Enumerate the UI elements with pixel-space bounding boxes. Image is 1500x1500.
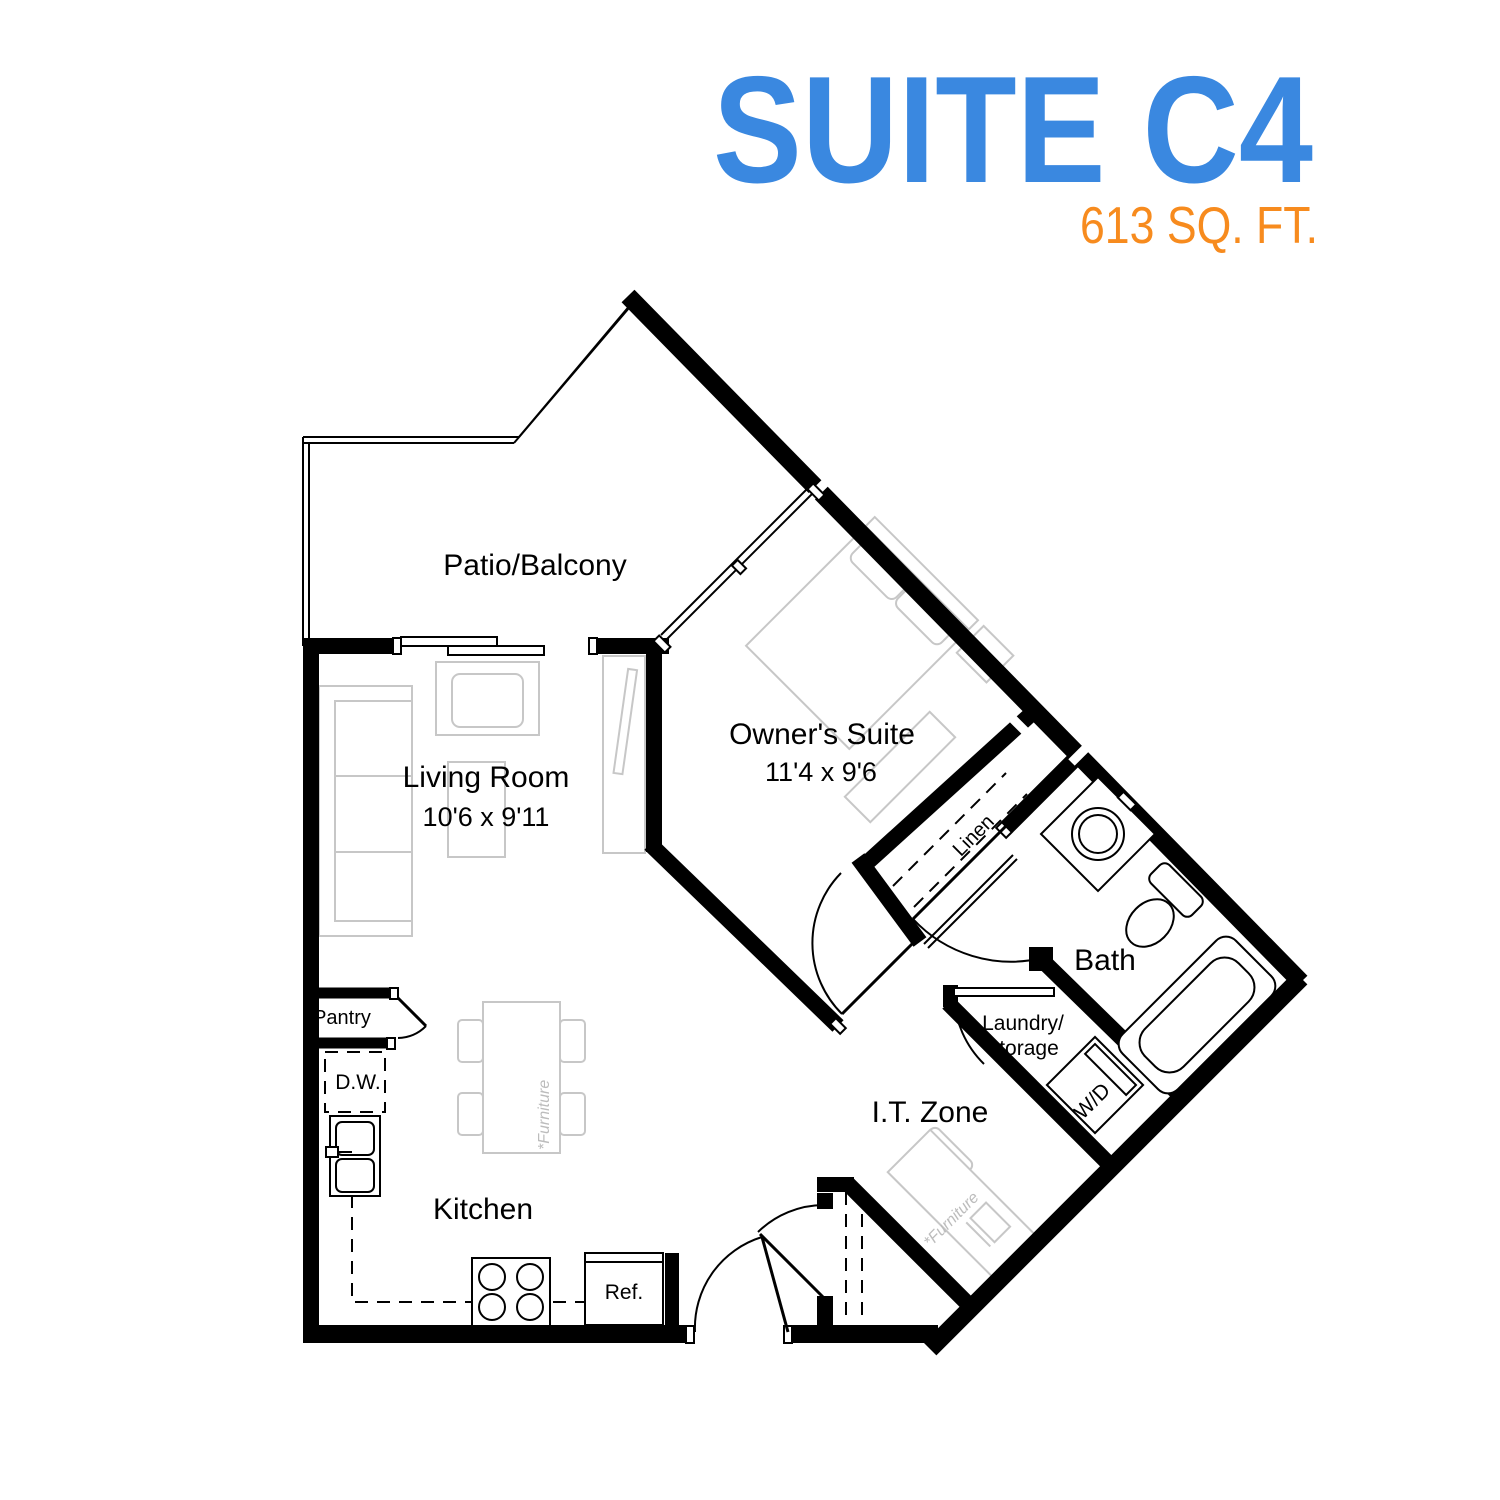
dining-chair [458, 1020, 483, 1062]
living-room-label: Living Room [403, 761, 570, 794]
page-subtitle: 613 SQ. FT. [1080, 197, 1318, 255]
dining-chair [560, 1020, 585, 1062]
burner-icon [517, 1294, 543, 1320]
laundry-door [954, 988, 1054, 996]
dashed-details [325, 773, 1027, 1324]
burner-icon [479, 1264, 505, 1290]
burner-icon [479, 1294, 505, 1320]
bath-fixtures [1041, 777, 1281, 1099]
northeast-outer-wall [628, 296, 1301, 982]
patio-railing [303, 304, 631, 646]
it-zone-label: I.T. Zone [872, 1096, 989, 1129]
dining-furniture: *Furniture [458, 1002, 585, 1153]
tv-console [603, 656, 645, 853]
linen-label: Linen [949, 811, 999, 861]
dining-chair [458, 1093, 483, 1135]
bath-label: Bath [1074, 944, 1136, 977]
laundry-label-line2: Storage [985, 1037, 1059, 1060]
suite-door [842, 944, 912, 1014]
linen-front [924, 855, 1013, 944]
owners-suite-dims: 11'4 x 9'6 [765, 757, 877, 787]
patio-label: Patio/Balcony [443, 549, 626, 582]
closet-front-stub-top [817, 1193, 833, 1209]
pantry-door [398, 998, 426, 1026]
living-room-furniture [319, 656, 645, 936]
closet-front-stub-bottom [817, 1296, 833, 1330]
dining-chair [560, 1093, 585, 1135]
laundry-label-line1: Laundry/ [982, 1012, 1064, 1035]
patio-slider-panel [448, 646, 544, 655]
pantry-label: Pantry [313, 1007, 371, 1029]
dishwasher-label: D.W. [335, 1071, 381, 1094]
sofa [319, 686, 412, 936]
furniture-note-dining: *Furniture [536, 1080, 553, 1150]
patio-slider-panel [401, 637, 497, 646]
page-title: SUITE C4 [713, 45, 1313, 215]
burner-icon [517, 1264, 543, 1290]
entry-door [762, 1237, 788, 1332]
kitchen-end-wall [665, 1253, 679, 1327]
faucet-icon [326, 1147, 338, 1157]
linen-stub-wall [858, 858, 920, 942]
owners-suite-label: Owner's Suite [729, 718, 915, 751]
kitchen-label: Kitchen [433, 1193, 533, 1226]
living-room-dims: 10'6 x 9'11 [423, 802, 550, 832]
hallway-diagonal-wall [650, 844, 838, 1026]
floorplan-canvas: SUITE C4 613 SQ. FT. *Furniture [0, 0, 1500, 1500]
refrigerator-label: Ref. [605, 1281, 644, 1304]
